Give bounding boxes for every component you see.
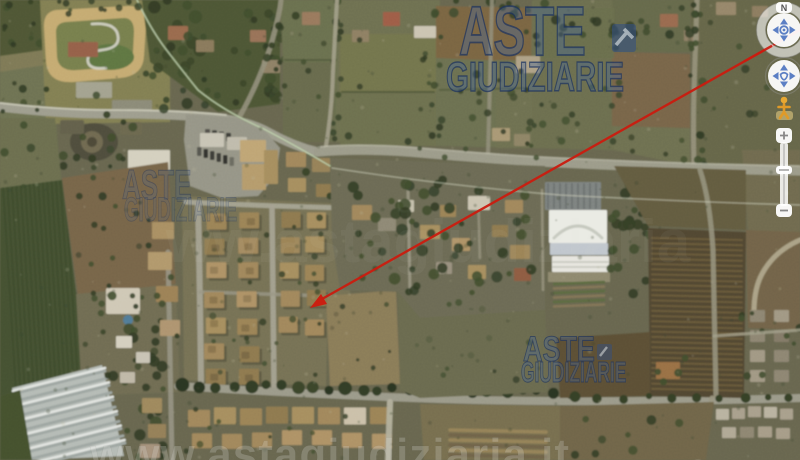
svg-text:GIUDIZIARIE: GIUDIZIARIE bbox=[124, 190, 237, 228]
svg-text:GIUDIZIARIE: GIUDIZIARIE bbox=[521, 357, 626, 390]
svg-text:www.astagiudiziaria.it: www.astagiudiziaria.it bbox=[89, 430, 570, 460]
svg-text:N: N bbox=[781, 3, 788, 13]
svg-text:ww.astagiudiziaria: ww.astagiudiziaria bbox=[165, 208, 691, 275]
svg-text:GIUDIZIARIE: GIUDIZIARIE bbox=[446, 53, 624, 101]
